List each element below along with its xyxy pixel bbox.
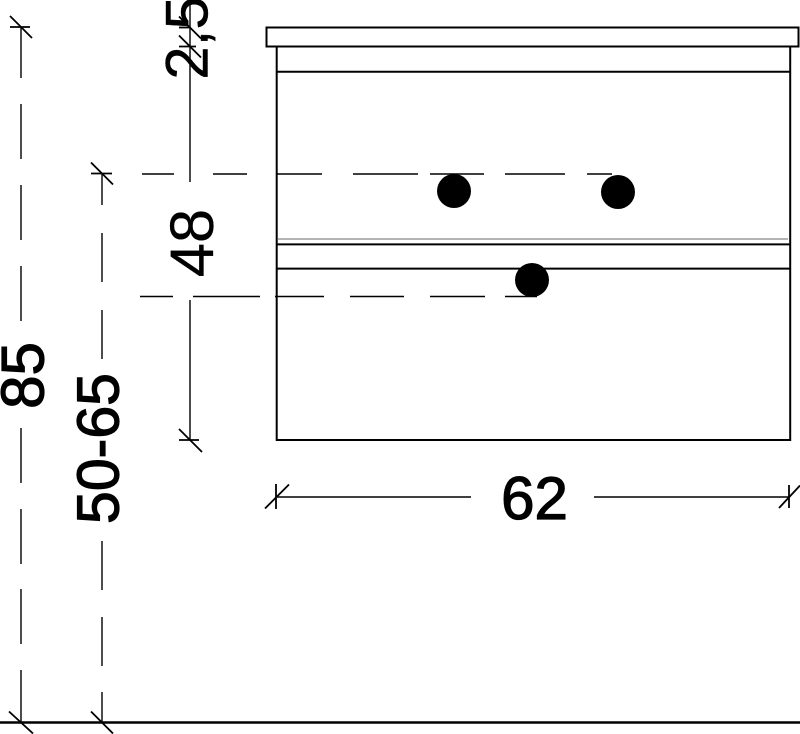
svg-text:2,5: 2,5 xyxy=(154,0,221,80)
svg-text:50-65: 50-65 xyxy=(66,373,132,524)
svg-text:48: 48 xyxy=(158,209,227,277)
svg-text:62: 62 xyxy=(501,465,568,532)
svg-text:85: 85 xyxy=(0,342,57,409)
